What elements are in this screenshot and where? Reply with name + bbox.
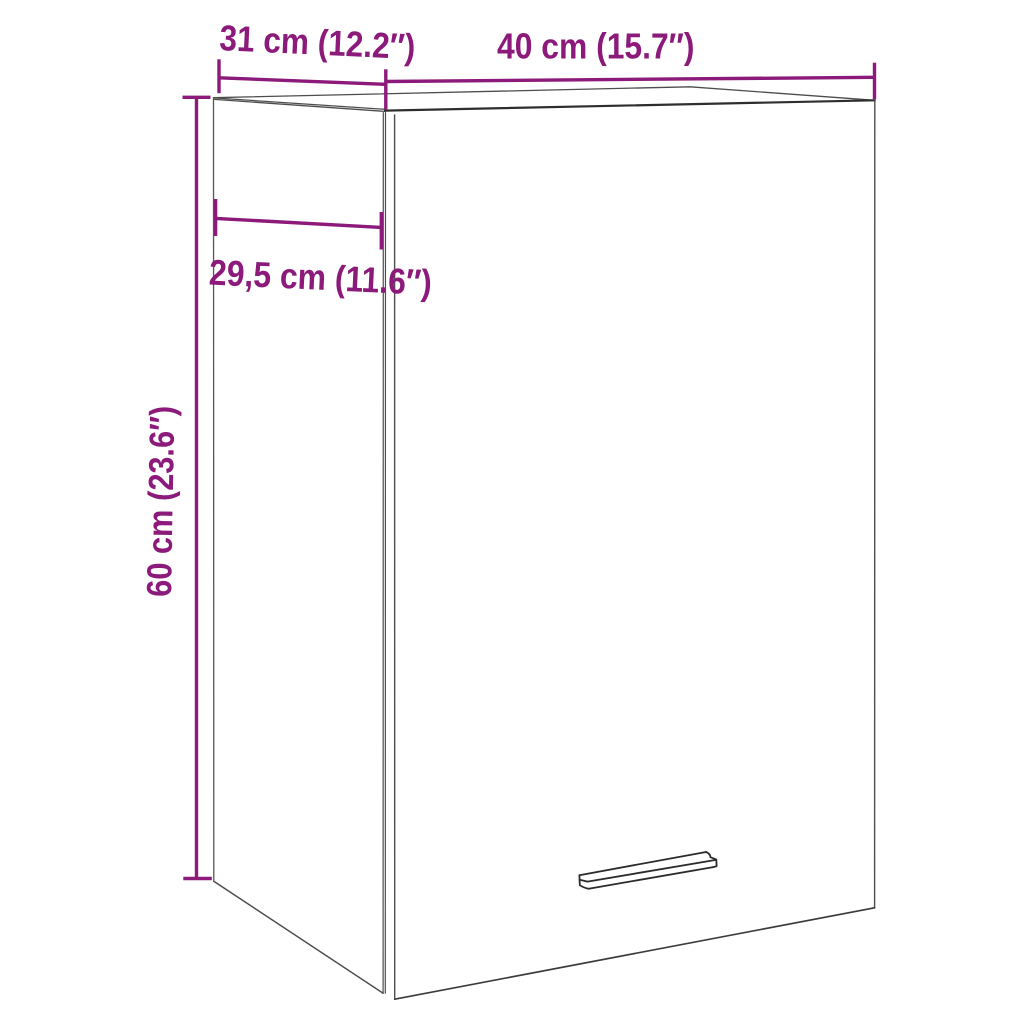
svg-text:40 cm (15.7″): 40 cm (15.7″): [497, 25, 695, 66]
svg-text:60 cm (23.6″): 60 cm (23.6″): [140, 405, 182, 597]
